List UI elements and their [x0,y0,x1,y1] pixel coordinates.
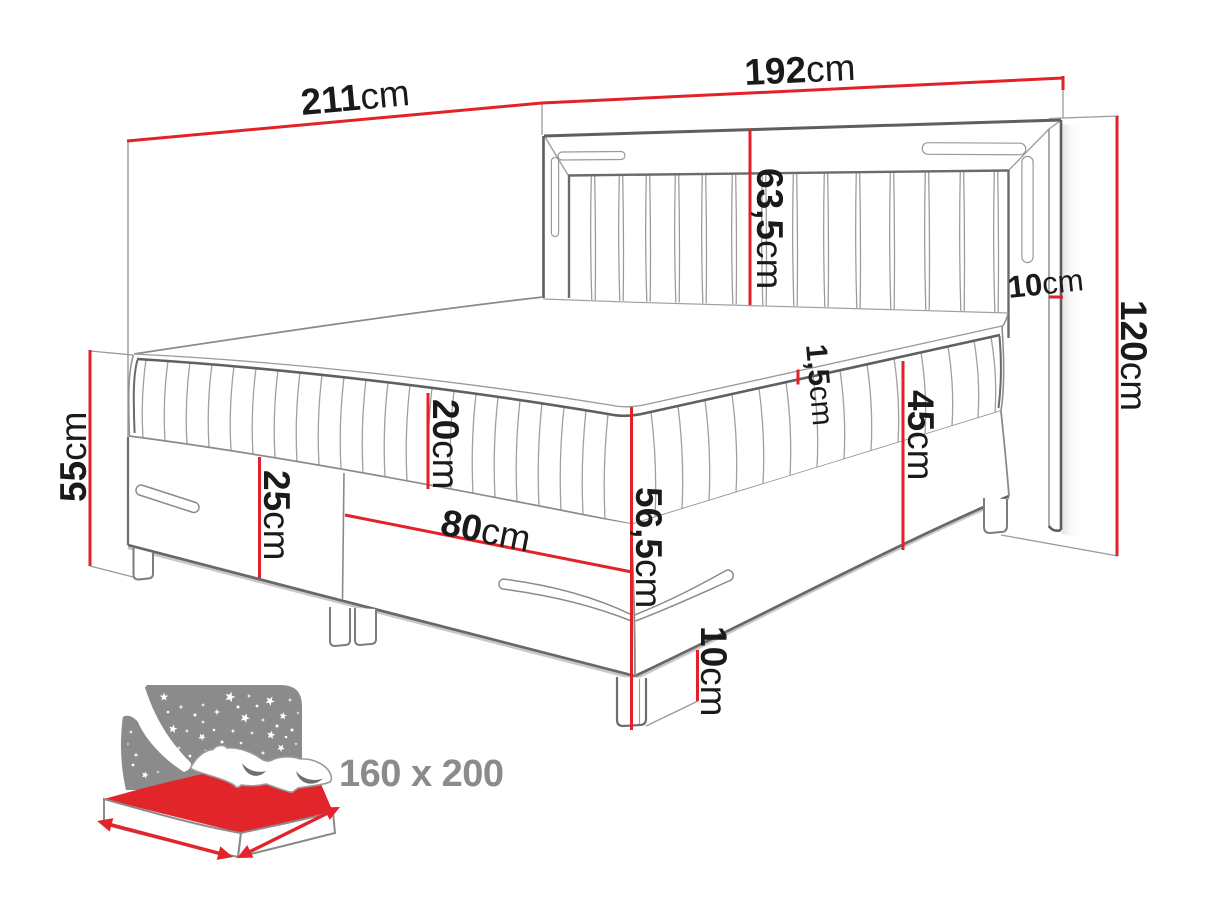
svg-text:10cm: 10cm [693,626,734,716]
svg-text:63,5cm: 63,5cm [749,168,790,289]
svg-text:160 x 200: 160 x 200 [339,753,504,795]
svg-text:120cm: 120cm [1113,300,1154,411]
svg-text:55cm: 55cm [53,412,94,502]
svg-text:20cm: 20cm [425,399,466,489]
svg-text:25cm: 25cm [256,470,297,560]
svg-text:56,5cm: 56,5cm [628,487,669,608]
svg-text:192cm: 192cm [743,47,856,93]
svg-text:45cm: 45cm [900,390,941,480]
